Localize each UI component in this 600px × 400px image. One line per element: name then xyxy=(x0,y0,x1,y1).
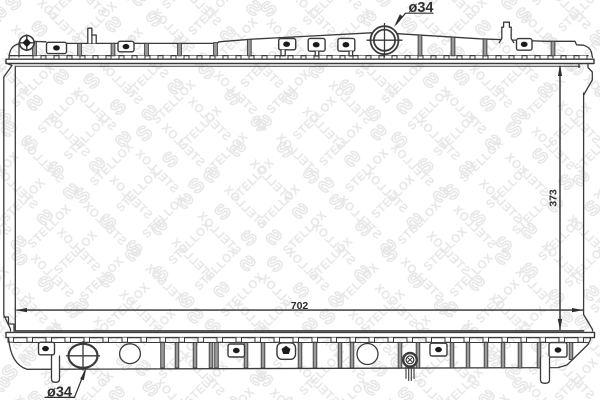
svg-text:373: 373 xyxy=(548,189,560,207)
svg-text:ø34: ø34 xyxy=(47,384,72,400)
svg-text:ø34: ø34 xyxy=(409,0,434,16)
svg-text:702: 702 xyxy=(291,300,309,312)
